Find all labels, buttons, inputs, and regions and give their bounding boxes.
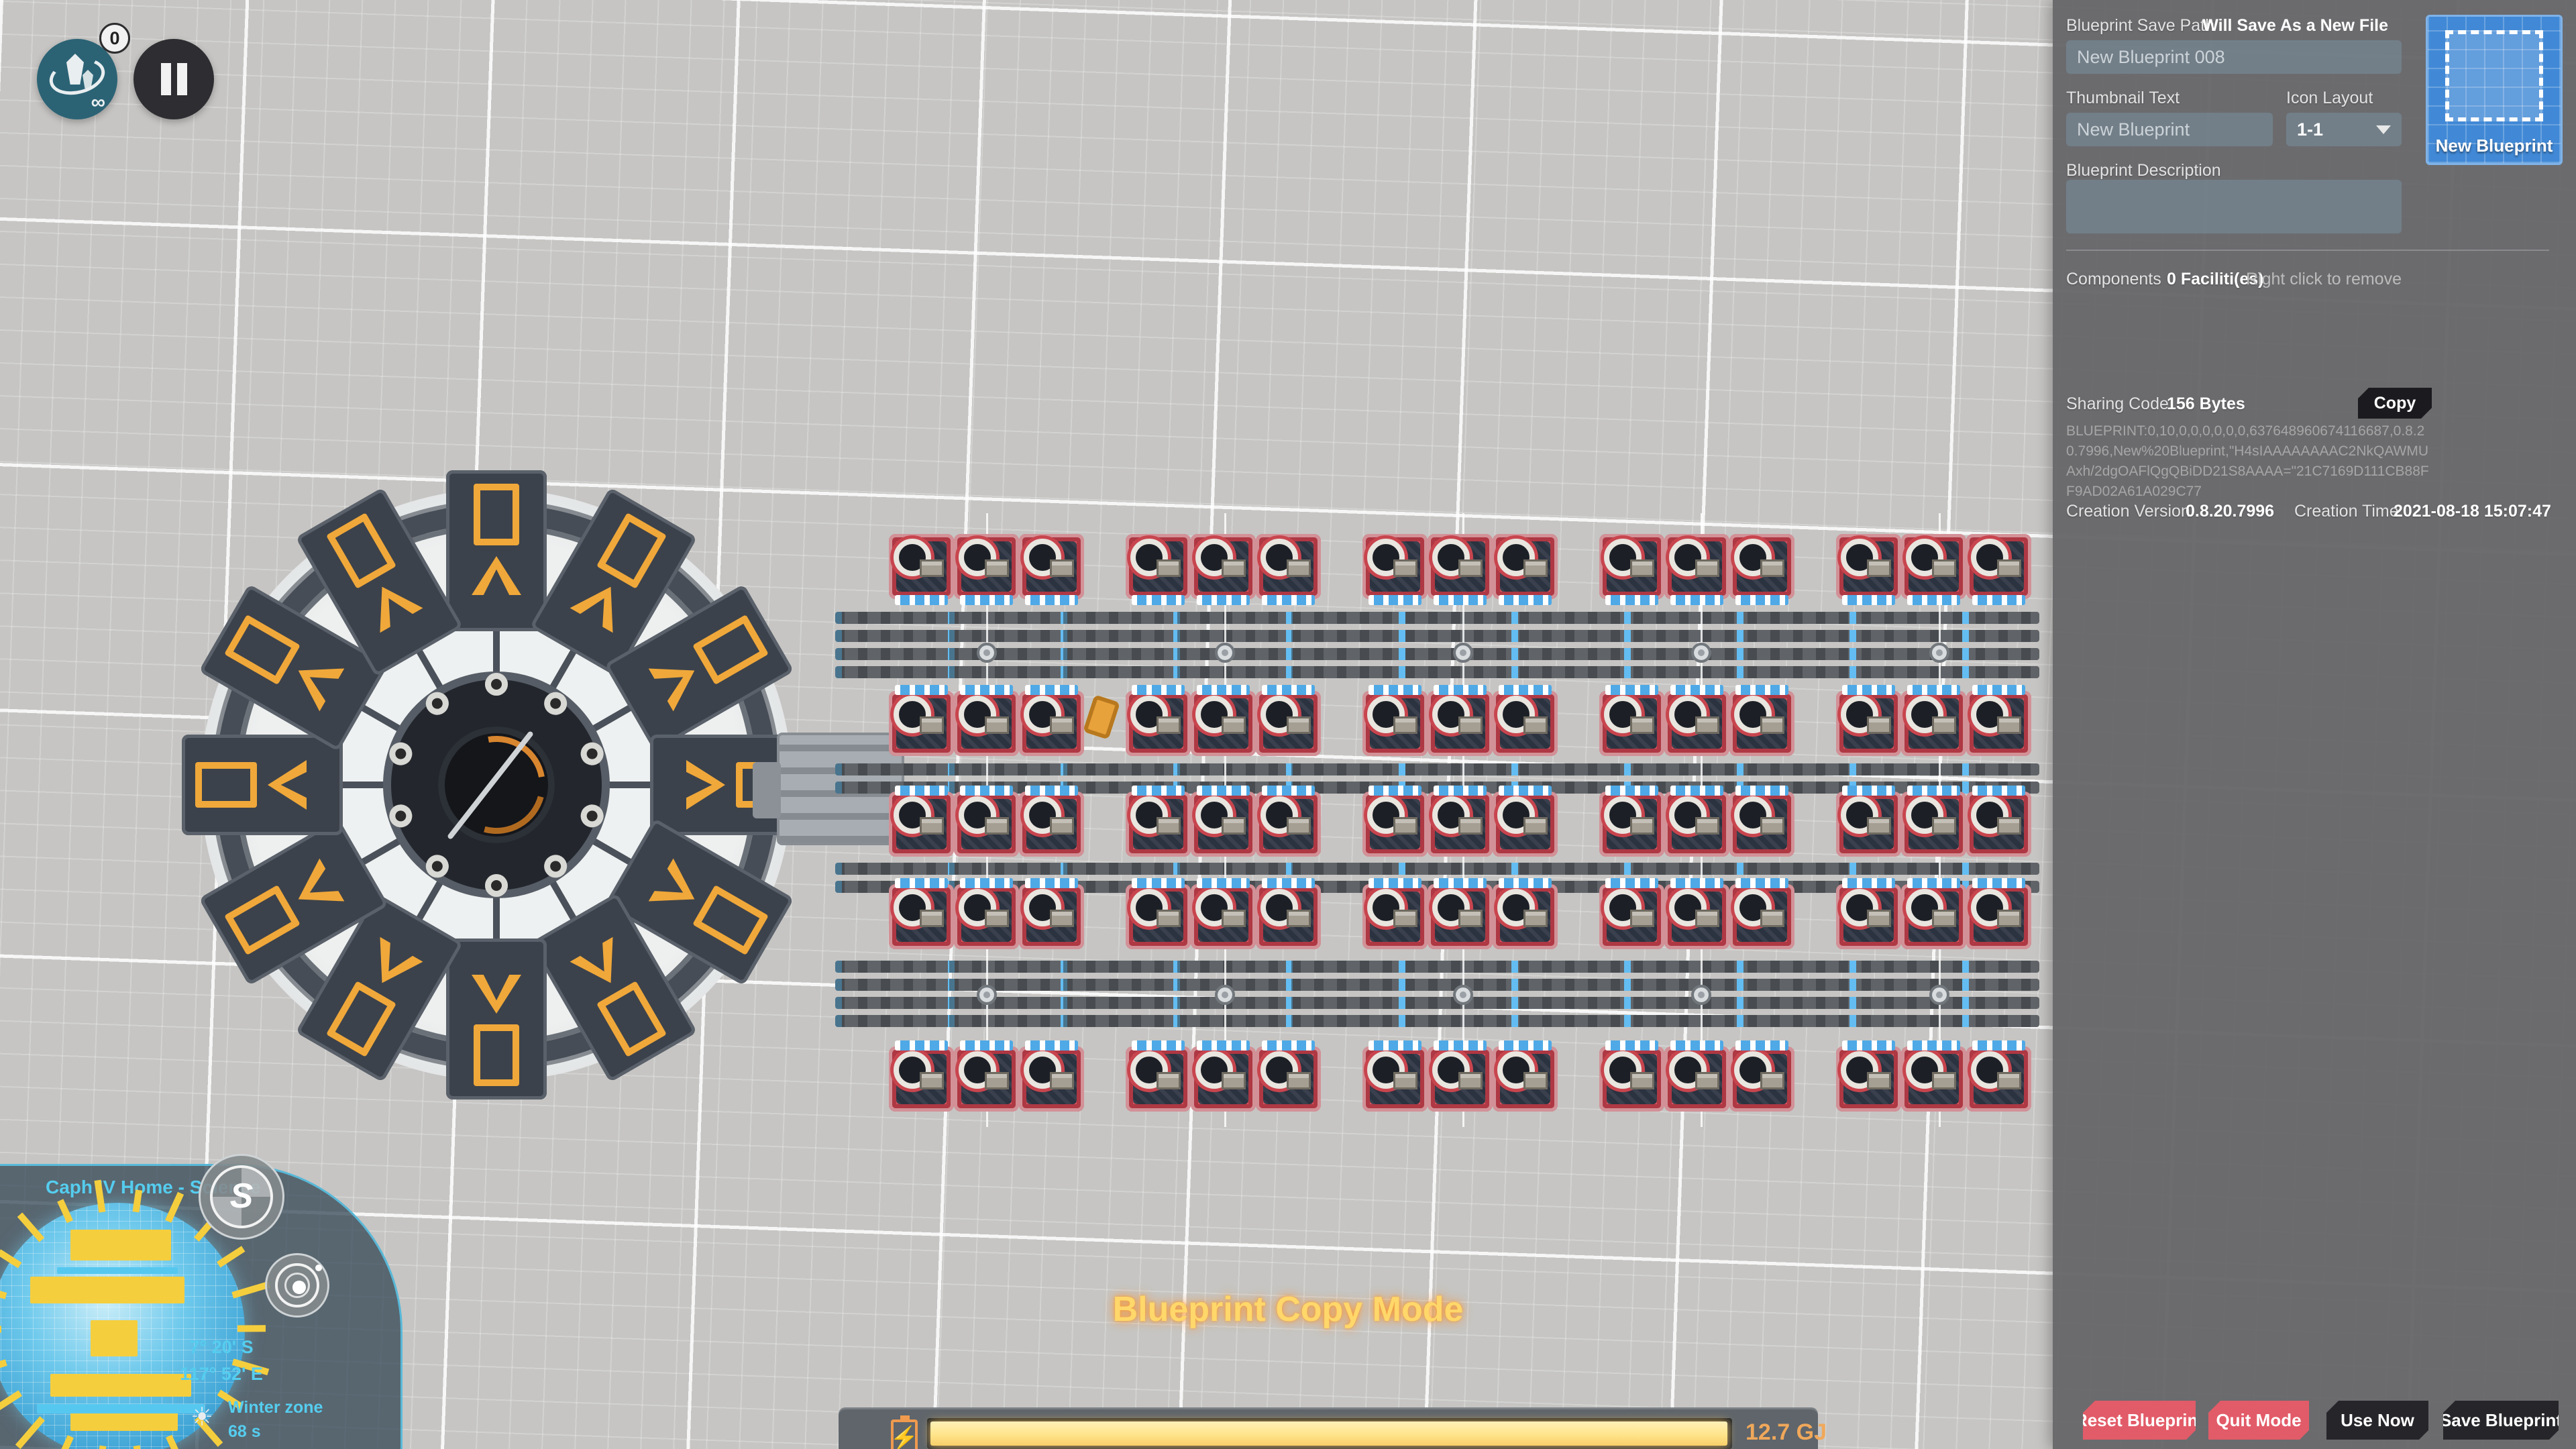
machine-facility[interactable] [1362, 691, 1428, 756]
cargo-crate [1932, 910, 1956, 927]
sorter-dock [1368, 1040, 1421, 1051]
conveyor-belt[interactable] [835, 863, 2039, 875]
icon-layout-dropdown[interactable]: 1-1 [2286, 113, 2402, 146]
machine-facility[interactable] [1966, 884, 2031, 949]
sorter-dock [1670, 595, 1723, 605]
use-now-button[interactable]: Use Now [2326, 1401, 2428, 1440]
sorter-dock [895, 878, 948, 888]
cargo-crate [1287, 716, 1311, 734]
cargo-crate [920, 1072, 944, 1089]
sorter-dock [1907, 595, 1960, 605]
machine-facility[interactable] [1599, 534, 1664, 599]
shore-patch [57, 1267, 178, 1274]
reset-blueprint-button[interactable]: Reset Blueprint [2083, 1401, 2196, 1440]
machine-facility[interactable] [1901, 1046, 1966, 1112]
cargo-crate [1932, 817, 1956, 835]
machine-facility[interactable] [1428, 534, 1493, 599]
power-pole[interactable] [977, 643, 997, 663]
sorter-dock [1499, 595, 1552, 605]
cargo-crate [1997, 910, 2021, 927]
machine-facility[interactable] [1362, 1046, 1428, 1112]
machine-facility[interactable] [1966, 691, 2031, 756]
vein-utilization-button[interactable]: ∞ [37, 39, 117, 119]
sorter-dock [1434, 595, 1487, 605]
pad-chevron-icon [472, 556, 521, 595]
cargo-crate [985, 716, 1009, 734]
conveyor-belt[interactable] [835, 612, 2039, 624]
game-viewport[interactable]: ∞ 0 Blueprint Copy Mode ⚡ 12.7 GJ Caph I… [0, 0, 2576, 1449]
machine-facility[interactable] [1493, 691, 1558, 756]
ring-launch-pad[interactable] [446, 470, 547, 631]
creation-time-label: Creation Time [2294, 502, 2399, 521]
ring-launch-pad[interactable] [182, 735, 343, 835]
star-icon [292, 1281, 306, 1294]
cargo-crate [1393, 817, 1417, 835]
conveyor-belt[interactable] [835, 979, 2039, 991]
player-coordinates: 7° 20' S 117° 52' E [154, 1334, 288, 1387]
pad-chevron-icon [360, 937, 423, 996]
sorter-dock [1499, 1040, 1552, 1051]
machine-facility[interactable] [1362, 884, 1428, 949]
machine-facility[interactable] [1019, 792, 1084, 857]
sorter-dock [1025, 685, 1078, 695]
power-pole[interactable] [1215, 643, 1235, 663]
cargo-crate [1458, 716, 1483, 734]
sorter-dock [1197, 595, 1250, 605]
cargo-crate [1287, 559, 1311, 577]
cargo-crate [1695, 817, 1719, 835]
sorter-dock [1605, 1040, 1658, 1051]
machine-facility[interactable] [1256, 534, 1321, 599]
cargo-crate [1050, 910, 1074, 927]
sorter-dock [1499, 786, 1552, 796]
sorter-dock [1842, 595, 1895, 605]
machine-facility[interactable] [1664, 792, 1729, 857]
machine-facility[interactable] [1664, 1046, 1729, 1112]
star-system-button[interactable] [265, 1253, 329, 1318]
sorter-dock [1670, 786, 1723, 796]
cargo-crate [1523, 817, 1548, 835]
sorter-dock [1132, 595, 1185, 605]
copy-button[interactable]: Copy [2358, 388, 2432, 419]
sorter-dock [1132, 685, 1185, 695]
cargo-crate [1222, 716, 1246, 734]
sorter-dock [1132, 878, 1185, 888]
sorter-dock [1025, 878, 1078, 888]
cargo-crate [1287, 817, 1311, 835]
machine-facility[interactable] [1256, 792, 1321, 857]
machine-facility[interactable] [1664, 691, 1729, 756]
sorter-dock [960, 1040, 1013, 1051]
blueprint-panel: Blueprint Save Path Will Save As a New F… [2053, 0, 2576, 1449]
cargo-crate [1695, 910, 1719, 927]
cargo-crate [1050, 716, 1074, 734]
machine-facility[interactable] [1836, 691, 1901, 756]
sorter-dock [1132, 786, 1185, 796]
cargo-crate [1523, 716, 1548, 734]
cargo-crate [1997, 1072, 2021, 1089]
sorter-dock [1670, 878, 1723, 888]
machine-facility[interactable] [1729, 884, 1794, 949]
hub-node [485, 673, 508, 696]
machine-facility[interactable] [1126, 792, 1191, 857]
cargo-crate [1932, 1072, 1956, 1089]
cargo-crate [1867, 559, 1891, 577]
cargo-crate [1867, 910, 1891, 927]
energy-bar-track [927, 1418, 1732, 1449]
sorter-dock [1197, 786, 1250, 796]
sorter[interactable] [1083, 694, 1120, 740]
pad-bracket-icon [326, 513, 396, 589]
save-status: Will Save As a New File [2053, 16, 2388, 36]
conveyor-belt[interactable] [835, 997, 2039, 1009]
machine-facility[interactable] [1599, 691, 1664, 756]
sorter-dock [1605, 685, 1658, 695]
machine-facility[interactable] [1191, 691, 1256, 756]
machine-facility[interactable] [1362, 534, 1428, 599]
sorter-dock [1262, 685, 1315, 695]
quit-mode-button[interactable]: Quit Mode [2208, 1401, 2309, 1440]
sharing-code-size: 156 Bytes [2167, 394, 2245, 414]
machine-facility[interactable] [1729, 691, 1794, 756]
sorter-dock [1434, 878, 1487, 888]
machine-facility[interactable] [1191, 534, 1256, 599]
pad-chevron-icon [649, 649, 707, 711]
cargo-crate [1157, 559, 1181, 577]
conveyor-belt[interactable] [835, 1015, 2039, 1027]
hub-node [386, 802, 415, 830]
build-patch [70, 1411, 178, 1431]
infinity-icon: ∞ [91, 93, 105, 113]
cargo-crate [1458, 559, 1483, 577]
cargo-crate [1222, 817, 1246, 835]
sorter-dock [1605, 878, 1658, 888]
cargo-crate [1867, 716, 1891, 734]
cargo-crate [1760, 910, 1784, 927]
sorter-dock [1132, 1040, 1185, 1051]
pad-bracket-icon [692, 885, 769, 955]
machine-facility[interactable] [889, 884, 954, 949]
machine-facility[interactable] [1599, 884, 1664, 949]
machine-facility[interactable] [1729, 534, 1794, 599]
zone-time: 68 s [228, 1419, 323, 1444]
sorter-dock [1197, 1040, 1250, 1051]
cargo-crate [1630, 716, 1654, 734]
machine-facility[interactable] [1729, 792, 1794, 857]
sorter-dock [1842, 786, 1895, 796]
blueprint-thumbnail[interactable]: New Blueprint [2426, 15, 2563, 165]
sorter-dock [1025, 786, 1078, 796]
sorter-dock [1434, 1040, 1487, 1051]
mecha-energy-panel: ⚡ 12.7 GJ [839, 1407, 1818, 1449]
machine-facility[interactable] [1019, 884, 1084, 949]
cargo-crate [1867, 1072, 1891, 1089]
machine-facility[interactable] [1019, 534, 1084, 599]
pause-button[interactable] [133, 39, 214, 119]
energy-bar-fill [930, 1421, 1727, 1446]
pad-bracket-icon [596, 513, 667, 589]
cargo-crate [920, 559, 944, 577]
thumbnail-text-input[interactable] [2066, 113, 2273, 146]
pad-chevron-icon [286, 649, 344, 711]
sorter-dock [1972, 878, 2025, 888]
machine-facility[interactable] [1901, 884, 1966, 949]
conveyor-belt[interactable] [835, 763, 2039, 775]
machine-facility[interactable] [1729, 1046, 1794, 1112]
machine-facility[interactable] [1126, 884, 1191, 949]
sorter-dock [1262, 878, 1315, 888]
vein-count-badge: 0 [99, 23, 130, 54]
cargo-crate [1157, 716, 1181, 734]
cargo-crate [1222, 1072, 1246, 1089]
conveyor-belt[interactable] [835, 648, 2039, 660]
power-pole[interactable] [1929, 643, 1949, 663]
divider [2066, 250, 2549, 251]
machine-facility[interactable] [1493, 792, 1558, 857]
machine-facility[interactable] [1836, 1046, 1901, 1112]
machine-facility[interactable] [889, 691, 954, 756]
cargo-crate [985, 817, 1009, 835]
sorter-dock [1368, 685, 1421, 695]
pad-bracket-icon [474, 1024, 519, 1086]
sorter-dock [1499, 878, 1552, 888]
thumbnail-text-label: Thumbnail Text [2066, 89, 2180, 108]
machine-facility[interactable] [1256, 691, 1321, 756]
cargo-crate [1050, 817, 1074, 835]
minimap-structure-spike [0, 1326, 1, 1333]
machine-facility[interactable] [1019, 1046, 1084, 1112]
machine-facility[interactable] [1256, 1046, 1321, 1112]
power-pole[interactable] [1453, 643, 1473, 663]
mode-banner: Blueprint Copy Mode [1113, 1289, 1464, 1330]
ring-hub [383, 672, 610, 898]
machine-facility[interactable] [954, 691, 1019, 756]
machine-facility[interactable] [1126, 534, 1191, 599]
machine-facility[interactable] [1191, 884, 1256, 949]
machine-facility[interactable] [954, 884, 1019, 949]
dyson-sphere-icon: S [201, 1176, 282, 1216]
zone-label: Winter zone [228, 1395, 323, 1419]
machine-facility[interactable] [1836, 534, 1901, 599]
pad-bracket-icon [224, 614, 301, 685]
machine-facility[interactable] [1191, 1046, 1256, 1112]
power-pole[interactable] [1929, 985, 1949, 1005]
cargo-crate [1997, 559, 2021, 577]
description-label: Blueprint Description [2066, 161, 2221, 180]
machine-facility[interactable] [1966, 534, 2031, 599]
sorter-dock [960, 878, 1013, 888]
sorter-dock [960, 595, 1013, 605]
sorter-dock [895, 1040, 948, 1051]
build-patch [30, 1277, 184, 1303]
machine-facility[interactable] [1599, 792, 1664, 857]
cargo-crate [1523, 910, 1548, 927]
save-blueprint-button[interactable]: Save Blueprint [2443, 1401, 2559, 1440]
sorter-dock [1972, 595, 2025, 605]
cargo-crate [1760, 716, 1784, 734]
machine-facility[interactable] [1493, 534, 1558, 599]
pause-icon [161, 63, 171, 95]
machine-facility[interactable] [954, 534, 1019, 599]
cargo-crate [1523, 559, 1548, 577]
machine-facility[interactable] [1599, 1046, 1664, 1112]
description-input[interactable] [2066, 180, 2402, 233]
machine-facility[interactable] [1901, 792, 1966, 857]
machine-facility[interactable] [1428, 884, 1493, 949]
cargo-crate [1932, 559, 1956, 577]
pad-chevron-icon [286, 858, 344, 920]
ring-megastructure[interactable] [210, 498, 783, 1071]
pad-chevron-icon [268, 760, 307, 810]
machine-facility[interactable] [1362, 792, 1428, 857]
cargo-crate [1287, 910, 1311, 927]
machine-facility[interactable] [1191, 792, 1256, 857]
cargo-crate [1932, 716, 1956, 734]
sorter-dock [1907, 685, 1960, 695]
cargo-crate [1393, 716, 1417, 734]
pad-bracket-icon [474, 484, 519, 545]
machine-facility[interactable] [1428, 1046, 1493, 1112]
cargo-crate [920, 910, 944, 927]
power-pole[interactable] [1453, 985, 1473, 1005]
creation-version-value: 0.8.20.7996 [2186, 502, 2274, 521]
cargo-crate [985, 1072, 1009, 1089]
build-patch [91, 1320, 138, 1356]
cargo-crate [1997, 817, 2021, 835]
save-path-input[interactable] [2066, 40, 2402, 74]
machine-facility[interactable] [1901, 534, 1966, 599]
pad-chevron-icon [649, 858, 707, 920]
components-hint: Right click to remove [2053, 270, 2402, 289]
machine-facility[interactable] [1428, 792, 1493, 857]
cargo-crate [1760, 817, 1784, 835]
sorter-dock [1262, 1040, 1315, 1051]
pad-bracket-icon [195, 762, 257, 808]
cargo-crate [920, 817, 944, 835]
cargo-crate [1523, 1072, 1548, 1089]
zone-info: Winter zone 68 s [228, 1395, 323, 1444]
thumbnail-caption: New Blueprint [2428, 136, 2561, 156]
machine-facility[interactable] [889, 1046, 954, 1112]
sorter-dock [1907, 786, 1960, 796]
machine-facility[interactable] [1428, 691, 1493, 756]
sorter-dock [1025, 1040, 1078, 1051]
dyson-sphere-button[interactable]: S [199, 1154, 284, 1240]
pad-bracket-icon [224, 885, 301, 955]
conveyor-belt[interactable] [835, 630, 2039, 642]
ring-launch-pad[interactable] [446, 938, 547, 1099]
machine-facility[interactable] [1019, 691, 1084, 756]
sorter-dock [1735, 1040, 1788, 1051]
sorter-dock [1605, 595, 1658, 605]
cargo-crate [1458, 910, 1483, 927]
sorter-dock [1735, 595, 1788, 605]
icon-layout-value: 1-1 [2297, 119, 2323, 140]
cargo-crate [1695, 559, 1719, 577]
cargo-crate [1157, 1072, 1181, 1089]
sharing-code-label: Sharing Code [2066, 394, 2169, 414]
build-patch [70, 1230, 171, 1260]
sorter-dock [1197, 878, 1250, 888]
machine-facility[interactable] [1901, 691, 1966, 756]
machine-facility[interactable] [1126, 691, 1191, 756]
sharing-code-text[interactable]: BLUEPRINT:0,10,0,0,0,0,0,0,6376489606741… [2066, 421, 2432, 502]
machine-facility[interactable] [1966, 792, 2031, 857]
cargo-crate [1287, 1072, 1311, 1089]
conveyor-belt[interactable] [835, 961, 2039, 973]
cargo-crate [1997, 716, 2021, 734]
machine-facility[interactable] [1966, 1046, 2031, 1112]
cargo-crate [1760, 1072, 1784, 1089]
power-pole[interactable] [1215, 985, 1235, 1005]
machine-facility[interactable] [1126, 1046, 1191, 1112]
pad-bracket-icon [326, 981, 396, 1057]
cargo-crate [985, 559, 1009, 577]
power-pole[interactable] [977, 985, 997, 1005]
belt-junction-structure[interactable] [753, 762, 781, 818]
cargo-crate [1050, 559, 1074, 577]
power-pole[interactable] [1691, 643, 1711, 663]
sorter-dock [1735, 878, 1788, 888]
machine-facility[interactable] [1256, 884, 1321, 949]
cargo-crate [1393, 910, 1417, 927]
machine-facility[interactable] [1493, 884, 1558, 949]
creation-time-value: 2021-08-18 15:07:47 [2394, 502, 2551, 521]
cargo-crate [1695, 1072, 1719, 1089]
sorter-dock [960, 685, 1013, 695]
sorter-dock [1972, 1040, 2025, 1051]
pad-chevron-icon [360, 574, 423, 633]
pad-chevron-icon [570, 937, 632, 996]
machine-facility[interactable] [954, 1046, 1019, 1112]
sorter-dock [1434, 685, 1487, 695]
sorter-dock [895, 786, 948, 796]
machine-facility[interactable] [889, 792, 954, 857]
battery-icon: ⚡ [891, 1419, 918, 1449]
power-pole[interactable] [1691, 985, 1711, 1005]
machine-facility[interactable] [1493, 1046, 1558, 1112]
machine-facility[interactable] [1664, 884, 1729, 949]
latitude: 7° 20' S [154, 1334, 288, 1360]
machine-facility[interactable] [954, 792, 1019, 857]
sorter-dock [1025, 595, 1078, 605]
cargo-crate [1867, 817, 1891, 835]
sorter-dock [1368, 595, 1421, 605]
machine-facility[interactable] [889, 534, 954, 599]
minimap-structure-spike [237, 1325, 266, 1332]
sorter-dock [1197, 685, 1250, 695]
chevron-down-icon [2376, 125, 2391, 134]
sun-icon: ☀ [191, 1402, 213, 1432]
machine-facility[interactable] [1836, 884, 1901, 949]
energy-value: 12.7 GJ [1746, 1419, 1827, 1446]
machine-facility[interactable] [1836, 792, 1901, 857]
sorter-dock [895, 685, 948, 695]
cargo-crate [1222, 910, 1246, 927]
sorter-dock [1735, 786, 1788, 796]
sorter-dock [1735, 685, 1788, 695]
cargo-crate [1393, 1072, 1417, 1089]
conveyor-belt[interactable] [835, 666, 2039, 678]
creation-version-label: Creation Version [2066, 502, 2190, 521]
machine-facility[interactable] [1664, 534, 1729, 599]
sorter-dock [1907, 1040, 1960, 1051]
pad-chevron-icon [570, 574, 632, 633]
cargo-crate [1050, 1072, 1074, 1089]
sorter-dock [1434, 786, 1487, 796]
sorter-dock [1670, 1040, 1723, 1051]
dashed-selection-icon [2445, 30, 2543, 121]
